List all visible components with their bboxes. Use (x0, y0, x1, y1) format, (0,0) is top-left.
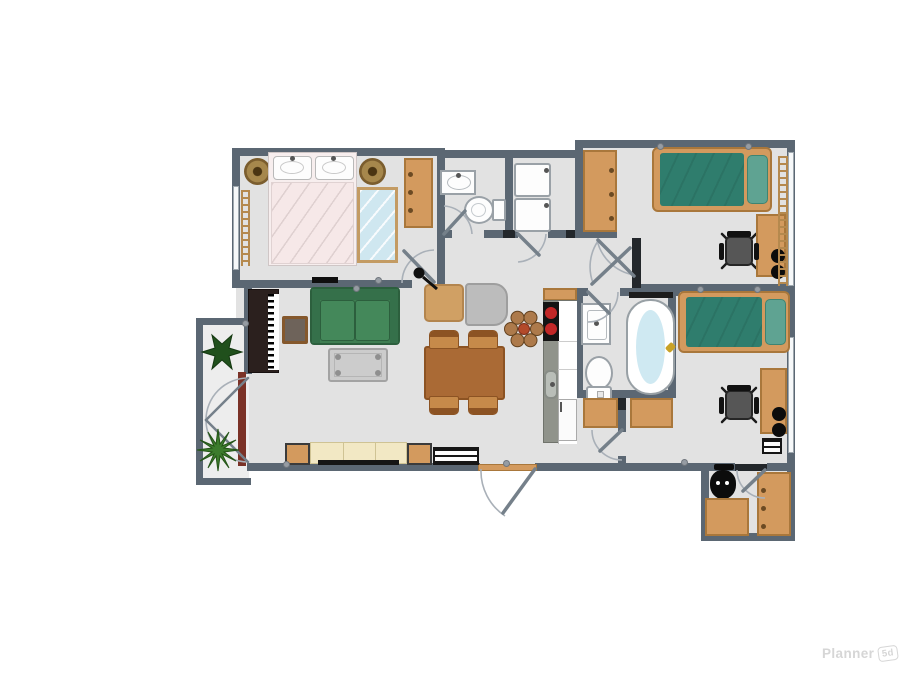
table-leg (375, 370, 381, 376)
coffee-table[interactable] (328, 348, 388, 382)
vacuum-detail (716, 481, 720, 485)
chair2-backrest (727, 385, 751, 391)
wall-dot (353, 285, 360, 292)
office-chair-2[interactable] (725, 390, 753, 420)
wall-dot (375, 277, 382, 284)
watermark-badge: 5d (877, 645, 899, 663)
chair1-armrest-right (754, 243, 759, 260)
burner-1 (545, 307, 557, 319)
mirror[interactable] (357, 187, 398, 263)
desk-storage[interactable] (705, 498, 749, 536)
chair-back (430, 331, 458, 337)
watermark: Planner 5d (822, 646, 898, 661)
speaker-2a[interactable] (772, 407, 786, 421)
chair2-armrest-left (719, 397, 724, 414)
wardrobe-master[interactable] (404, 158, 433, 228)
bathtub-water (633, 307, 668, 387)
armchair-gray[interactable] (465, 283, 508, 326)
bath-toilet-bowl[interactable] (585, 356, 613, 390)
wardrobe-handle (408, 172, 413, 177)
sideboard[interactable] (310, 442, 407, 464)
sofa[interactable] (310, 287, 400, 345)
radiator-living[interactable] (433, 447, 479, 465)
dining-table[interactable] (424, 346, 505, 400)
wardrobe-handle (408, 208, 413, 213)
dining-chair-nw[interactable] (429, 330, 459, 349)
sideboard-tv (318, 460, 399, 465)
wardrobe-handle (761, 506, 766, 511)
wardrobe-handle (609, 168, 614, 173)
wardrobe-handle (761, 488, 766, 493)
bed2-blanket (686, 297, 762, 347)
wardrobe-handle (408, 190, 413, 195)
wc-toilet-inner (471, 203, 486, 217)
radiator-bedroom1[interactable] (778, 156, 788, 286)
pillow-left-seam (280, 161, 304, 174)
washer[interactable] (514, 163, 551, 197)
office-chair-1[interactable] (725, 236, 753, 266)
wall-dot (681, 459, 688, 466)
bed-lamp-right (331, 156, 336, 161)
speaker-2b[interactable] (772, 423, 786, 437)
wall-dot (657, 143, 664, 150)
wc-toilet-bowl[interactable] (464, 196, 494, 224)
hall-cabinet[interactable] (583, 398, 618, 428)
bed1-blanket (660, 153, 744, 206)
kitchen-sink[interactable] (544, 370, 558, 399)
wc-toilet-tank[interactable] (492, 199, 506, 221)
piano-keys (268, 294, 279, 370)
wardrobe-handle (761, 524, 766, 529)
table-leg (335, 370, 341, 376)
vacuum[interactable] (710, 470, 736, 499)
wall-dot (503, 460, 510, 467)
wall-dot (754, 286, 761, 293)
wall-dot (283, 461, 290, 468)
round-rug-right[interactable] (359, 158, 386, 185)
dresser-bedroom2[interactable] (630, 398, 673, 428)
stove[interactable] (543, 302, 559, 341)
pillow-right-seam (322, 161, 346, 174)
watermark-brand: Planner (822, 646, 874, 661)
dryer[interactable] (514, 198, 551, 232)
bed2-pillow (765, 299, 786, 345)
window-master[interactable] (233, 186, 239, 270)
table-leg (335, 354, 341, 360)
single-bed-1[interactable] (652, 147, 772, 212)
fridge-handle (560, 402, 562, 412)
shower-rail (629, 292, 673, 298)
dryer-knob (544, 203, 549, 208)
dining-chair-sw[interactable] (429, 396, 459, 415)
table-leg (375, 354, 381, 360)
single-bed-2[interactable] (678, 291, 790, 353)
radiator-master[interactable] (241, 190, 250, 266)
double-bed[interactable] (268, 152, 357, 266)
chair2-armrest-right (754, 397, 759, 414)
sofa-arm-right (390, 300, 398, 343)
kitchen-sink-drain (550, 382, 555, 387)
sofa-arm-left (312, 300, 320, 343)
wall-dot (745, 143, 752, 150)
bath-sink-drain (594, 321, 599, 326)
wall-dot (242, 320, 249, 327)
vacuum-detail (725, 481, 729, 485)
toilet-flush-button (597, 391, 604, 398)
side-table-right[interactable] (407, 443, 432, 465)
wardrobe-handle (609, 192, 614, 197)
wardrobe-storage[interactable] (757, 472, 791, 536)
dining-chair-se[interactable] (468, 396, 498, 415)
sofa-cushion-right (355, 300, 390, 341)
sofa-cushion-left (320, 300, 355, 341)
duvet (271, 182, 354, 264)
washer-knob (544, 168, 549, 173)
bathtub[interactable] (626, 299, 675, 395)
piano-bench[interactable] (282, 316, 308, 344)
piano[interactable] (248, 289, 279, 373)
bed1-pillow (747, 155, 768, 204)
wc-sink-faucet (456, 173, 461, 178)
radiator-bedroom2[interactable] (762, 438, 782, 454)
wall-tv[interactable] (312, 277, 338, 283)
chair1-backrest (727, 231, 751, 237)
floor-plan-canvas: Planner 5d (0, 0, 900, 675)
balcony-door-panel[interactable] (238, 372, 246, 466)
wall-dot (697, 286, 704, 293)
cabinet-divider (558, 369, 577, 370)
wardrobe-handle (609, 216, 614, 221)
fridge[interactable] (558, 399, 577, 441)
piano-black-keys (268, 294, 274, 370)
burner-2 (545, 323, 557, 335)
chair-back (430, 408, 458, 414)
cabinet-divider (558, 341, 577, 342)
bed-lamp-left (290, 156, 295, 161)
round-rug-left[interactable] (244, 158, 271, 185)
chair1-armrest-left (719, 243, 724, 260)
bath-sink[interactable] (581, 303, 611, 345)
armchair-tan[interactable] (424, 284, 464, 322)
chair-back (469, 408, 497, 414)
wc-sink[interactable] (440, 170, 476, 195)
chair-back (469, 331, 497, 337)
dining-chair-ne[interactable] (468, 330, 498, 349)
wardrobe-bedroom1[interactable] (583, 150, 617, 232)
window-bedroom1[interactable] (788, 152, 794, 286)
window-bedroom2[interactable] (788, 337, 794, 453)
